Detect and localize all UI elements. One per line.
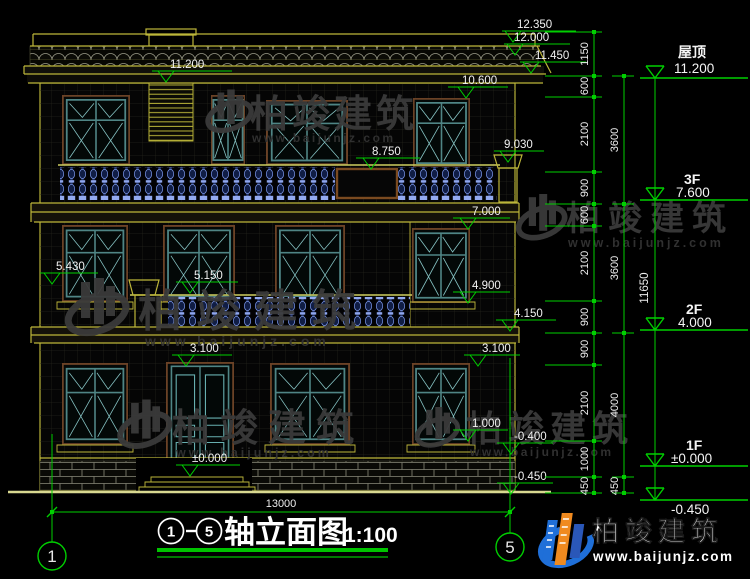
dim-total-label: 11650 — [639, 272, 651, 303]
dim-label: 2100 — [579, 391, 591, 415]
elevation-value: 12.350 — [517, 19, 552, 31]
floor-level: 屋顶 11.200 — [640, 44, 748, 78]
floor-level: 3F 7.600 — [640, 171, 748, 200]
dim-label: 4000 — [609, 393, 621, 417]
floor-name: 屋顶 — [678, 44, 706, 60]
floor-elevation: 4.000 — [678, 315, 712, 330]
elevation-value: 10.600 — [462, 75, 497, 87]
elevation-value: 7.000 — [472, 206, 501, 218]
dimension-total: 11650 — [639, 78, 655, 500]
floor-level: -0.450 — [640, 488, 748, 517]
floor-levels: 屋顶 11.200 3F 7.600 2F 4.000 1F ±0.000 -0… — [640, 44, 748, 517]
floor-level: 1F ±0.000 — [640, 437, 748, 466]
dim-label: 450 — [609, 477, 621, 495]
cad-elevation-drawing: 柏竣建筑 www.baijunjz.com 柏竣建筑 www.baijunjz.… — [0, 0, 750, 579]
louver-vent — [149, 74, 193, 141]
dim-label: 600 — [579, 206, 591, 224]
parapet-cap — [30, 34, 540, 46]
elevation-value: 9.030 — [504, 139, 533, 151]
title-axis-to: 5 — [205, 524, 213, 541]
elevation-value: 5.430 — [56, 261, 85, 273]
floor-elevation: -0.450 — [671, 502, 709, 517]
watermark-url: www.baijunjz.com — [567, 236, 724, 250]
third-floor-slab — [31, 203, 519, 222]
dim-label: 2100 — [579, 251, 591, 275]
balusters — [398, 167, 497, 200]
dim-label: 1150 — [579, 42, 591, 66]
elevation-value: 3.100 — [190, 343, 219, 355]
axis-number: 5 — [505, 538, 514, 557]
floor-elevation: 11.200 — [674, 61, 714, 76]
axis-number: 1 — [47, 547, 56, 566]
plinth — [40, 458, 515, 492]
dim-label: 3600 — [609, 256, 621, 280]
elevation-value: 3.100 — [482, 343, 511, 355]
floor-elevation: ±0.000 — [671, 451, 712, 466]
drawing-canvas: 柏竣建筑 www.baijunjz.com 柏竣建筑 www.baijunjz.… — [0, 0, 750, 579]
elevation-value: 5.150 — [194, 270, 223, 282]
title-underline-thick — [157, 548, 388, 552]
roof-tiles — [30, 46, 538, 66]
brick-base — [40, 461, 515, 490]
elevation-value: -0.400 — [514, 431, 547, 443]
logo-brand-text: 柏竣建筑 — [592, 516, 724, 547]
dim-label: 1000 — [579, 447, 591, 471]
dim-label: 600 — [579, 77, 591, 95]
watermark-brand: 柏竣建筑 — [138, 287, 370, 336]
window — [63, 364, 128, 444]
watermark-brand: 柏竣建筑 — [172, 408, 364, 450]
dim-label: 900 — [579, 340, 591, 358]
logo-building-icon — [541, 513, 585, 565]
watermark-brand: 柏竣建筑 — [250, 94, 418, 136]
elevation-value: 11.200 — [170, 59, 204, 71]
balusters — [60, 167, 335, 200]
window — [413, 229, 470, 303]
stair-bulkhead — [146, 29, 196, 46]
watermark-url: www.baijunjz.com — [469, 445, 614, 459]
elevation-value: 12.000 — [514, 32, 549, 44]
elevation-value: 11.450 — [535, 50, 569, 62]
dim-label: 900 — [579, 308, 591, 326]
watermark-brand: 柏竣建筑 — [566, 199, 734, 238]
elevation-value: -0.450 — [514, 471, 547, 483]
floor-elevation: 7.600 — [676, 185, 710, 200]
elevation-value: 1.000 — [472, 418, 501, 430]
dim-label: 900 — [579, 179, 591, 197]
title-scale: 1:100 — [344, 524, 398, 547]
balcony-panel — [337, 169, 397, 198]
elevation-value: 4.150 — [514, 308, 543, 320]
elevation-value: 8.750 — [372, 146, 401, 158]
window — [414, 99, 470, 168]
drawing-title: 1 5 轴立面图 1:100 — [157, 515, 398, 557]
dim-label: 450 — [579, 477, 591, 495]
elevation-value: ±0.000 — [192, 453, 227, 465]
title-text: 轴立面图 — [224, 515, 348, 550]
floor-level: 2F 4.000 — [640, 301, 748, 330]
window — [63, 96, 130, 165]
watermark-url: www.baijunjz.com — [251, 131, 396, 145]
dim-label: 3600 — [609, 128, 621, 152]
brand-logo: 柏竣建筑 www.baijunjz.com — [535, 513, 733, 572]
dim-label: 2100 — [579, 122, 591, 146]
logo-url: www.baijunjz.com — [592, 549, 734, 564]
width-dimension: 13000 — [266, 498, 297, 510]
watermark-url: www.baijunjz.com — [144, 333, 330, 349]
title-axis-from: 1 — [167, 524, 175, 541]
watermark-icon — [514, 194, 568, 243]
elevation-value: 4.900 — [472, 280, 501, 292]
